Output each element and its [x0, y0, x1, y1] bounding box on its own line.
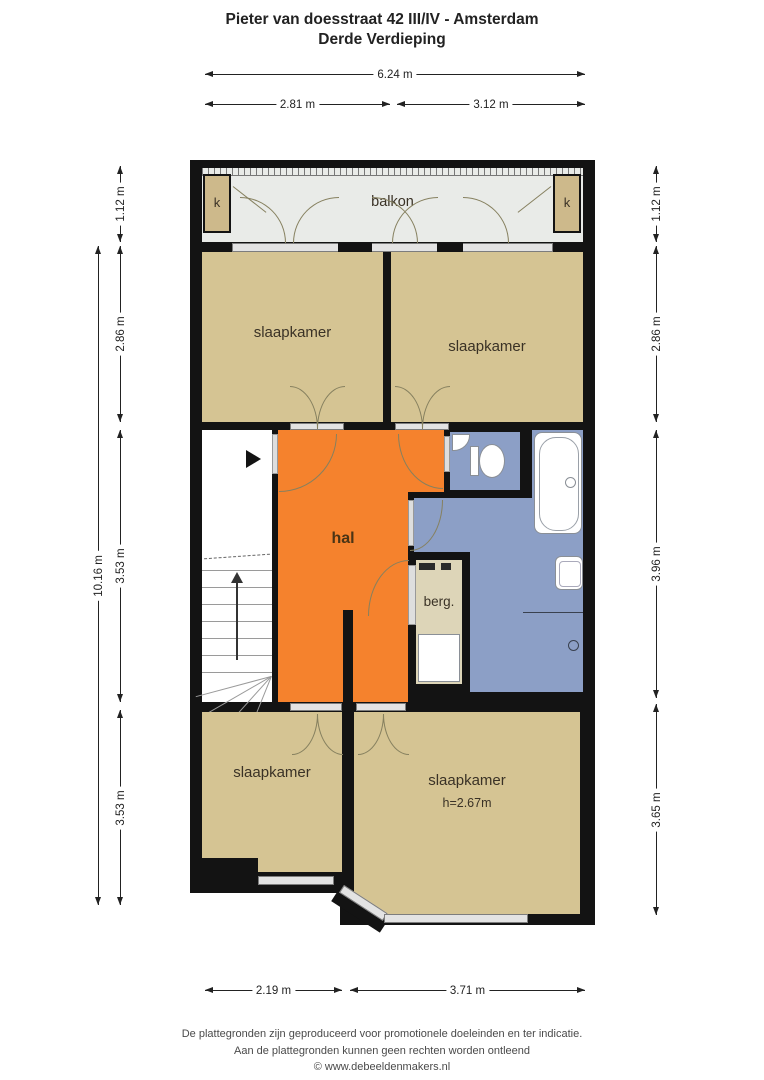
meter-cupboard-icon: [441, 563, 451, 570]
dimension-top-total: 6.24 m: [205, 68, 585, 82]
dimension-left-balcony: 1.12 m: [114, 166, 128, 242]
arrow-down-icon: [653, 234, 659, 242]
dimension-right-middle: 3.96 m: [650, 430, 664, 698]
dimension-label: 3.53 m: [115, 544, 127, 587]
meter-cupboard-icon: [419, 563, 435, 570]
arrow-up-icon: [653, 246, 659, 254]
arrow-right-icon: [382, 101, 390, 107]
dimension-bottom-right: 3.71 m: [350, 984, 585, 998]
arrow-down-icon: [117, 694, 123, 702]
stairs-headroom-line: [204, 554, 270, 560]
page-title: Pieter van doesstraat 42 III/IV - Amster…: [0, 10, 764, 50]
arrow-up-icon: [653, 166, 659, 174]
dimension-label: 3.71 m: [446, 985, 489, 997]
dimension-left-bottom: 3.53 m: [114, 710, 128, 905]
room-label-bedroom-bottom-left: slaapkamer: [202, 764, 342, 781]
dimension-label: 2.19 m: [252, 985, 295, 997]
toilet: [479, 444, 505, 478]
wash-basin-bowl: [559, 561, 581, 587]
arrow-left-icon: [397, 101, 405, 107]
floor-plan-page: Pieter van doesstraat 42 III/IV - Amster…: [0, 0, 764, 1080]
arrow-left-icon: [205, 987, 213, 993]
shower-drain-icon: [568, 640, 579, 651]
room-closet-right: k: [553, 174, 581, 233]
room-label-bedroom-top-left: slaapkamer: [202, 324, 383, 341]
dimension-left-bedrooms: 2.86 m: [114, 246, 128, 422]
washing-machine: [418, 634, 460, 682]
title-line1: Pieter van doesstraat 42 III/IV - Amster…: [0, 10, 764, 30]
dimension-label: 2.86 m: [115, 312, 127, 355]
dimension-top-left: 2.81 m: [205, 98, 390, 112]
arrow-up-icon: [117, 430, 123, 438]
toilet-tank: [470, 446, 479, 476]
arrow-down-icon: [117, 234, 123, 242]
disclaimer-line2: Aan de plattegronden kunnen geen rechten…: [0, 1043, 764, 1060]
wash-basin: [555, 556, 583, 590]
arrow-down-icon: [95, 897, 101, 905]
dimension-label: 1.12 m: [651, 182, 663, 225]
room-bedroom-top-right: slaapkamer: [391, 252, 583, 422]
credit-url: © www.debeeldenmakers.nl: [0, 1059, 764, 1076]
dimension-right-bottom: 3.65 m: [650, 704, 664, 915]
room-label-hall: hal: [278, 530, 408, 548]
dimension-right-bedrooms: 2.86 m: [650, 246, 664, 422]
arrow-down-icon: [117, 897, 123, 905]
dimension-label: 3.53 m: [115, 786, 127, 829]
arrow-down-icon: [653, 414, 659, 422]
dimension-bottom-left: 2.19 m: [205, 984, 342, 998]
disclaimer: De plattegronden zijn geproduceerd voor …: [0, 1026, 764, 1076]
bathtub-faucet: [565, 477, 576, 488]
window-bay: [384, 914, 528, 923]
window: [258, 876, 334, 885]
arrow-right-icon: [577, 71, 585, 77]
stairs-up-arrow-icon: [231, 572, 243, 583]
balcony-door-sill: [232, 243, 553, 252]
doorway-threshold: [290, 703, 342, 711]
entrance-arrow-icon: [246, 450, 261, 468]
disclaimer-line1: De plattegronden zijn geproduceerd voor …: [0, 1026, 764, 1043]
arrow-right-icon: [577, 101, 585, 107]
arrow-right-icon: [334, 987, 342, 993]
room-wc: [450, 432, 520, 490]
doorway-threshold: [408, 565, 416, 625]
arrow-down-icon: [653, 690, 659, 698]
room-label-ceiling-height: h=2.67m: [354, 796, 580, 810]
doorway-threshold: [356, 703, 406, 711]
room-label-closet-right: k: [555, 195, 579, 210]
wall-segment: [338, 242, 372, 252]
arrow-right-icon: [577, 987, 585, 993]
arrow-up-icon: [653, 704, 659, 712]
arrow-up-icon: [117, 166, 123, 174]
room-closet-left: k: [203, 174, 231, 233]
bathtub: [534, 432, 582, 534]
wall-segment: [343, 610, 353, 712]
room-label-storage: berg.: [416, 594, 462, 609]
dimension-label: 1.12 m: [115, 182, 127, 225]
room-label-bedroom-bottom-right: slaapkamer: [354, 772, 580, 789]
stairwell: [202, 430, 272, 702]
dimension-top-right: 3.12 m: [397, 98, 585, 112]
arrow-up-icon: [95, 246, 101, 254]
arrow-down-icon: [117, 414, 123, 422]
dimension-label: 2.81 m: [276, 99, 319, 111]
stairs-up-arrow-line: [236, 582, 238, 660]
dimension-right-balcony: 1.12 m: [650, 166, 664, 242]
wall-segment: [202, 858, 258, 893]
arrow-down-icon: [653, 907, 659, 915]
balcony-railing: [202, 168, 583, 176]
room-bedroom-bottom-right: slaapkamer h=2.67m: [354, 712, 580, 914]
dimension-label: 3.12 m: [469, 99, 512, 111]
doorway-threshold: [272, 434, 278, 474]
arrow-up-icon: [653, 430, 659, 438]
wall-segment: [437, 242, 463, 252]
room-label-closet-left: k: [205, 195, 229, 210]
dimension-label: 6.24 m: [373, 69, 416, 81]
room-label-bedroom-top-right: slaapkamer: [391, 338, 583, 355]
dimension-label: 10.16 m: [93, 551, 105, 601]
dimension-left-total: 10.16 m: [92, 246, 106, 905]
title-line2: Derde Verdieping: [0, 30, 764, 50]
arrow-up-icon: [117, 710, 123, 718]
arrow-left-icon: [350, 987, 358, 993]
fountain-basin: [452, 434, 470, 451]
dimension-label: 3.65 m: [651, 788, 663, 831]
shower-divider-line: [523, 612, 583, 613]
dimension-label: 2.86 m: [651, 312, 663, 355]
arrow-up-icon: [117, 246, 123, 254]
dimension-label: 3.96 m: [651, 542, 663, 585]
arrow-left-icon: [205, 71, 213, 77]
dimension-left-middle: 3.53 m: [114, 430, 128, 702]
arrow-left-icon: [205, 101, 213, 107]
